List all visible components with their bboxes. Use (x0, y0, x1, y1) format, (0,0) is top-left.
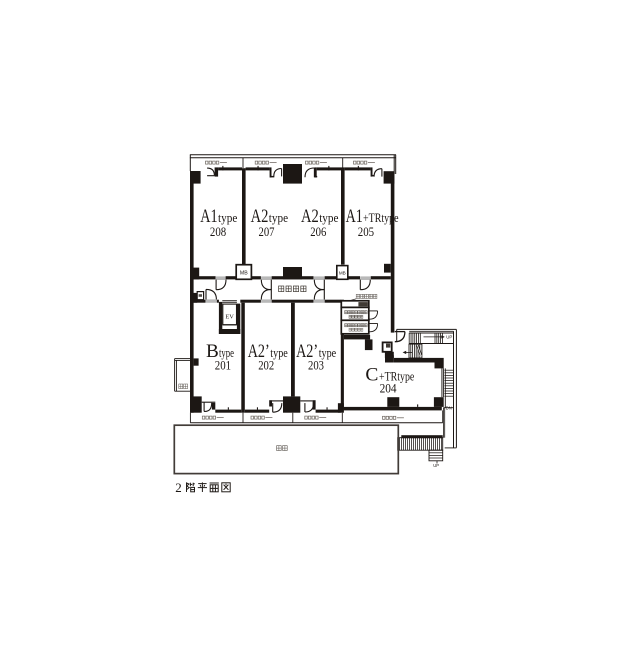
svg-text:207: 207 (259, 224, 275, 239)
svg-text:206: 206 (310, 224, 326, 239)
svg-text:MB: MB (339, 271, 346, 276)
svg-text:205: 205 (358, 224, 374, 239)
svg-text:DN: DN (446, 405, 452, 410)
svg-text:202: 202 (258, 358, 274, 373)
svg-text:208: 208 (210, 224, 226, 239)
svg-text:2: 2 (175, 480, 182, 495)
svg-text:204: 204 (380, 380, 397, 395)
svg-text:C: C (365, 366, 378, 386)
svg-text:UP: UP (446, 335, 452, 340)
svg-text:201: 201 (215, 358, 231, 373)
svg-text:MB: MB (240, 270, 248, 276)
svg-text:UP: UP (433, 463, 439, 468)
svg-text:203: 203 (308, 358, 324, 373)
svg-text:EV: EV (225, 313, 234, 320)
